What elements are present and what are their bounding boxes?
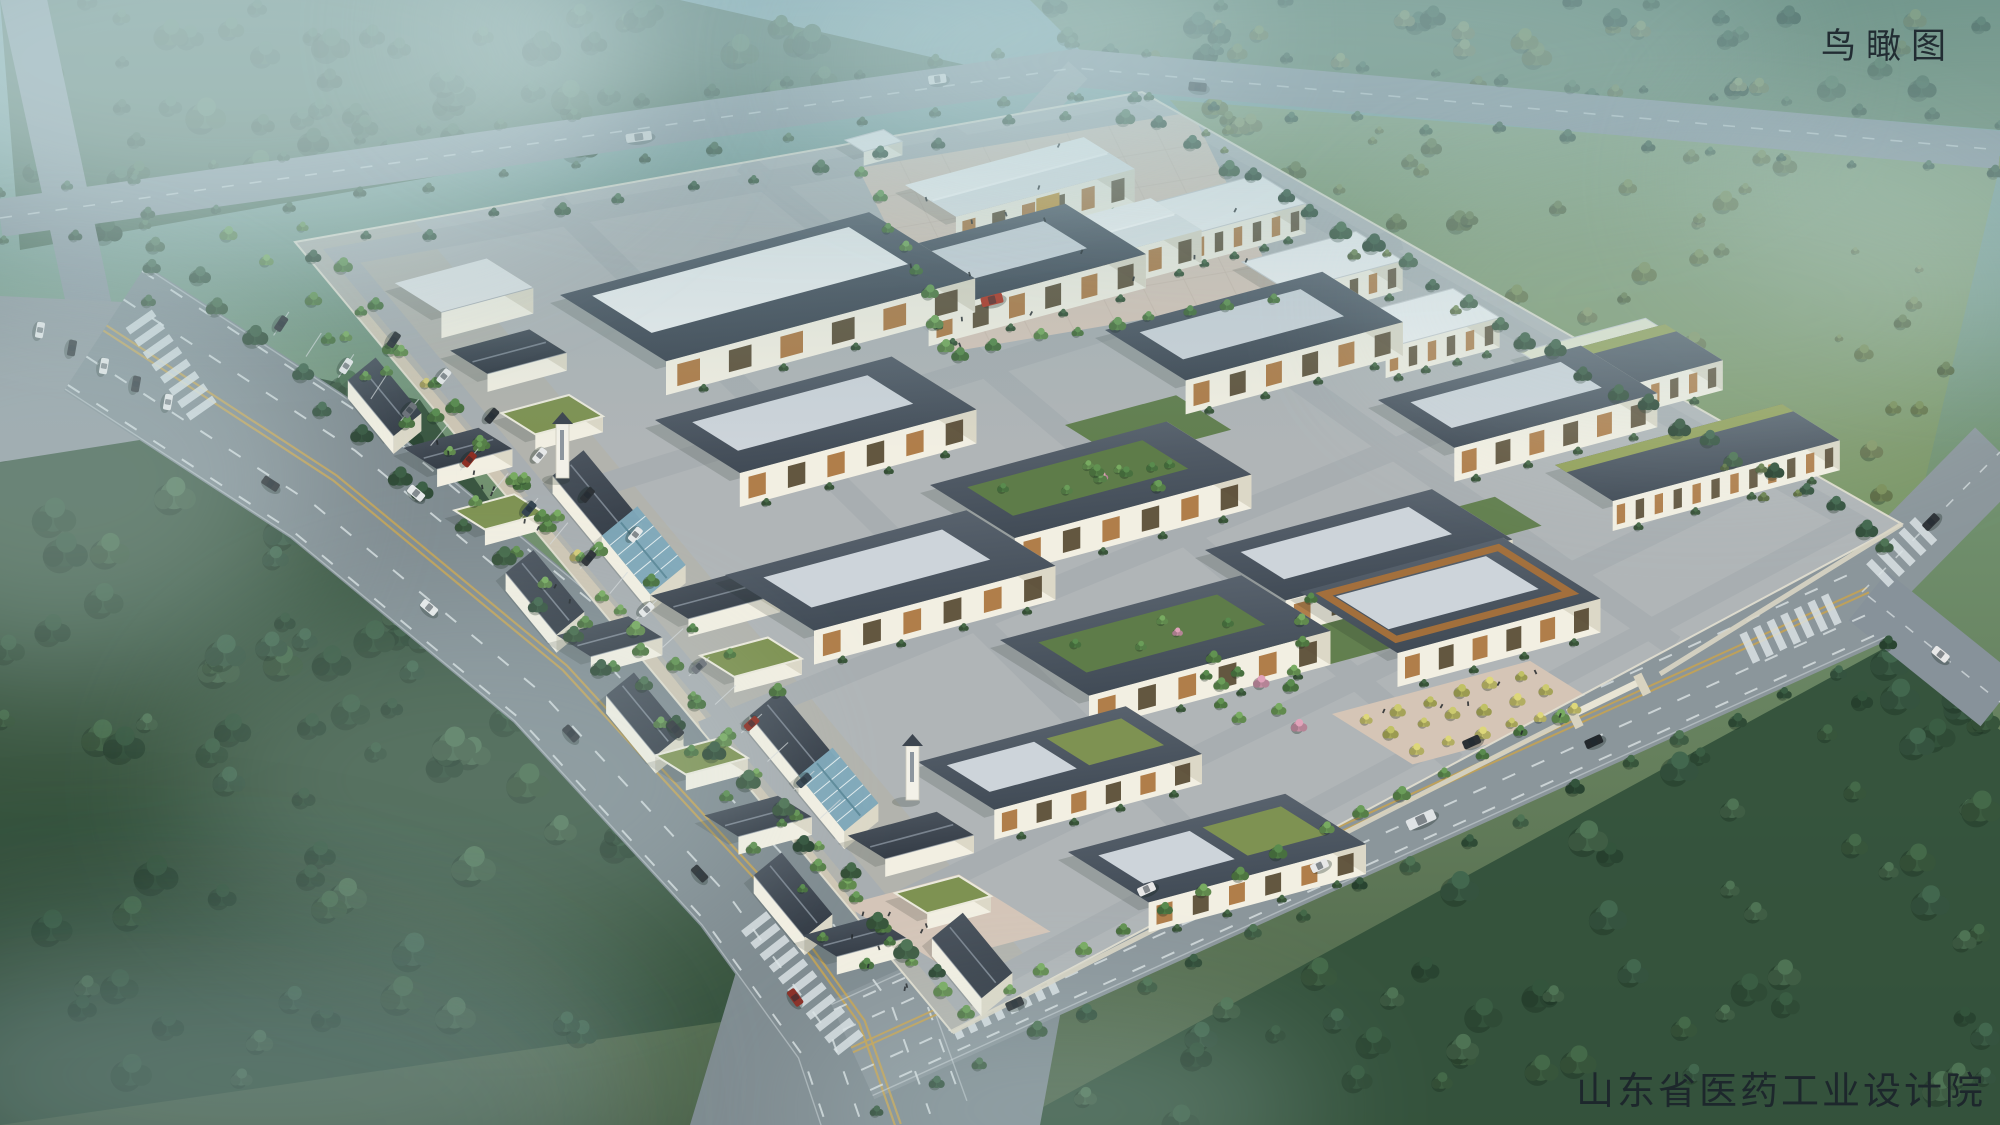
industrial-park-birdseye-rendering [0, 0, 2000, 1125]
fog-layer [0, 0, 2000, 1125]
aerial-rendering-stage: 鸟瞰图 山东省医药工业设计院 [0, 0, 2000, 1125]
view-title-label: 鸟瞰图 [1821, 18, 1956, 69]
design-institute-credit: 山东省医药工业设计院 [1576, 1060, 1986, 1115]
